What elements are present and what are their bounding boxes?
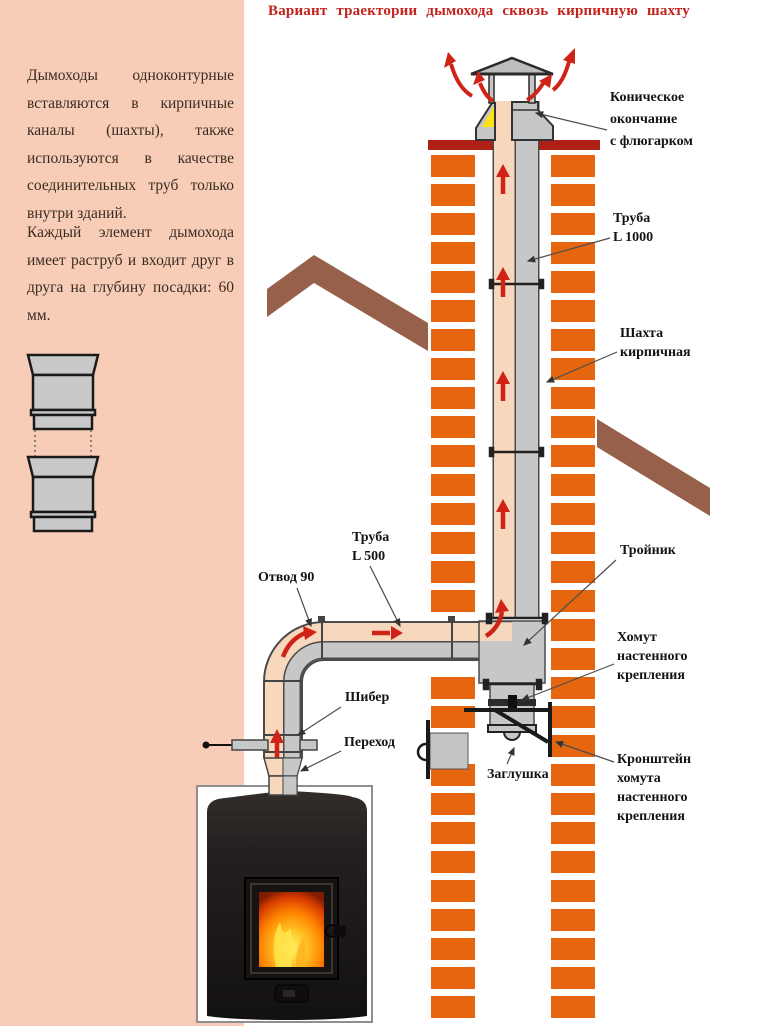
brick [551,503,595,525]
brick [551,184,595,206]
label-tee: Тройник [620,542,676,561]
brick [551,764,595,786]
roof-left [267,255,428,351]
brick [431,213,475,235]
leader-lines [297,113,617,771]
label-damper: Шибер [345,689,389,708]
cone-right-block [512,102,553,140]
brick [551,648,595,670]
brick [431,329,475,351]
page-title: Вариант траектории дымохода сквозь кирпи… [268,3,738,20]
leader-damper [298,707,341,735]
label-wall-bracket: Кронштейн хомута настенного крепления [617,751,691,827]
brick [431,416,475,438]
leader-elbow [297,588,311,626]
brick [551,445,595,467]
brick [551,996,595,1018]
brick [431,358,475,380]
brick [551,619,595,641]
brick [431,909,475,931]
brick [431,532,475,554]
label-conical-cap: Коническое окончание с флюгарком [610,87,693,153]
brick [551,358,595,380]
sidebar-paragraph-1: Дымоходы одноконтурные вставляются в кир… [27,62,234,227]
brick [431,996,475,1018]
adapter-piece [264,758,302,795]
brick [431,938,475,960]
brick [551,967,595,989]
brick [551,387,595,409]
leader-adapter [301,751,341,771]
label-adapter: Переход [344,734,395,753]
brick [431,155,475,177]
brick [551,416,595,438]
brick [551,880,595,902]
roof-right [597,419,710,516]
label-pipe-l500: Труба L 500 [352,529,389,567]
pipe-socket-upper [28,355,98,429]
brick [431,590,475,612]
brick [551,793,595,815]
brick [431,474,475,496]
brick [551,271,595,293]
brick [431,445,475,467]
brick [431,793,475,815]
brick [551,561,595,583]
brick-column-right [551,155,595,1018]
label-plug: Заглушка [487,766,549,785]
brick [431,822,475,844]
brick [551,213,595,235]
label-pipe-l1000: Труба L 1000 [613,210,653,248]
leader-plug [507,748,514,764]
label-wall-clamp: Хомут настенного крепления [617,629,688,686]
conical-top [471,58,553,140]
brick [431,851,475,873]
label-brick-shaft: Шахта кирпичная [620,325,691,363]
brick [551,938,595,960]
brick [551,851,595,873]
brick [551,329,595,351]
brick [431,967,475,989]
label-elbow-90: Отвод 90 [258,569,314,588]
brick [431,387,475,409]
brick [431,503,475,525]
brick [551,155,595,177]
shaft-flue-pipe [493,101,540,618]
brick [551,822,595,844]
brick [551,590,595,612]
brick [431,242,475,264]
brick [431,300,475,322]
brick [551,909,595,931]
page: Вариант траектории дымохода сквозь кирпи… [0,0,764,1026]
smoke-arrow-far-left [444,52,472,96]
brick [551,706,595,728]
cap-umbrella [471,58,553,74]
sidebar-paragraph-2: Каждый элемент дымохода имеет раструб и … [27,219,234,329]
brick [431,677,475,699]
roof [267,255,710,516]
brick-column-left [431,155,475,1018]
brick [551,300,595,322]
brick [551,474,595,496]
brick [431,184,475,206]
pipe-socket-lower [28,457,98,531]
brick [431,880,475,902]
brick [431,561,475,583]
leader-pipe500 [370,566,400,626]
stove-photo [197,786,372,1022]
smoke-arrow-far-right [553,48,575,90]
brick [551,532,595,554]
brick [431,271,475,293]
